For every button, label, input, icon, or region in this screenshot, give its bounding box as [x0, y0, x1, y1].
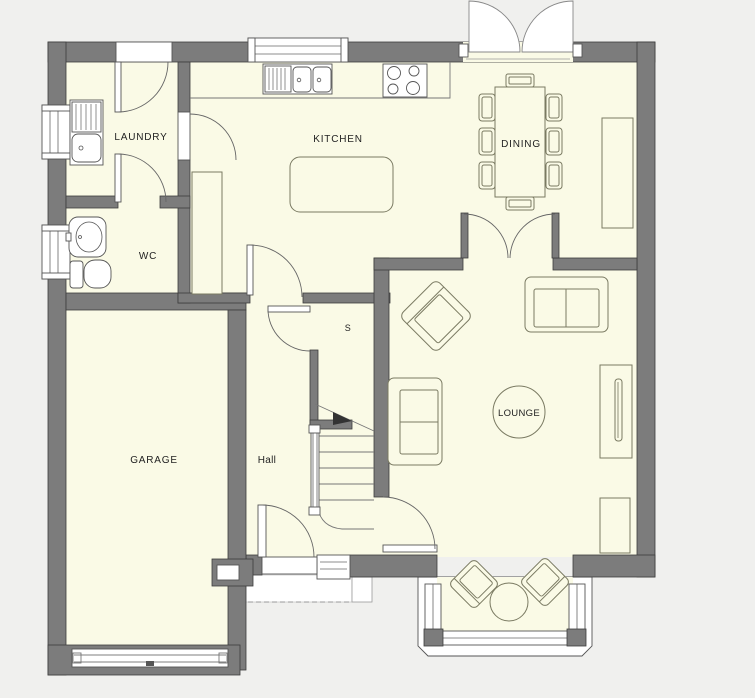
kitchen-island	[290, 157, 393, 212]
floor-plan: LAUNDRY KITCHEN DINING WC S GARAGE Hall …	[0, 0, 755, 698]
porch-step	[352, 577, 372, 602]
wall-right	[637, 42, 655, 577]
wall-laundry-wc-right	[160, 196, 190, 208]
patio-doors	[459, 1, 582, 62]
garage-door-handle	[146, 661, 154, 666]
kitchen-window	[248, 38, 348, 62]
room-label-garage: GARAGE	[130, 455, 178, 466]
wall-store-west	[310, 350, 318, 428]
kitchen-tall-unit	[192, 172, 222, 294]
porch	[246, 575, 372, 602]
room-label-lounge: LOUNGE	[498, 408, 540, 419]
stairs-handrail	[311, 430, 319, 510]
wall-laundry-right-lower	[178, 160, 190, 303]
garage-floor	[66, 557, 228, 648]
meter-box	[217, 565, 239, 580]
laundry-window	[42, 105, 70, 159]
wall-lounge-south-left	[350, 555, 437, 577]
wall-laundry-right-upper	[178, 62, 190, 112]
wall-stairs-lounge	[374, 258, 389, 497]
wc-toilet	[70, 260, 111, 288]
wall-garage-right	[228, 310, 246, 670]
patio-door-leaf-right	[522, 1, 573, 52]
room-label-store: S	[345, 323, 351, 333]
dining-sideboard	[602, 118, 633, 228]
kitchen-sink	[263, 64, 332, 94]
garage-door	[72, 649, 228, 667]
bay-corner-post-right	[567, 629, 586, 646]
floor-plan-page: LAUNDRY KITCHEN DINING WC S GARAGE Hall …	[0, 0, 755, 698]
wall-laundry-wc-left	[66, 196, 118, 208]
hob	[383, 64, 427, 97]
lounge-cabinet	[600, 498, 630, 553]
wall-lounge-south-right	[573, 555, 655, 577]
wall-dining-lounge-right	[553, 258, 637, 270]
wc-basin	[66, 217, 106, 257]
room-label-wc: WC	[139, 251, 157, 262]
patio-door-leaf-left	[469, 1, 520, 52]
room-label-kitchen: KITCHEN	[313, 134, 363, 145]
wall-dining-lounge-left	[374, 258, 463, 270]
tv-unit	[600, 365, 632, 458]
bay-round-table	[490, 583, 528, 621]
room-label-dining: DINING	[501, 139, 541, 150]
laundry-sink	[70, 100, 103, 165]
lounge-sofa-left	[388, 378, 442, 465]
bay-corner-post-left	[424, 629, 443, 646]
room-label-hall: Hall	[258, 455, 276, 466]
room-label-laundry: LAUNDRY	[114, 132, 167, 143]
lounge-sofa-top	[525, 277, 608, 332]
hall-sidelight-window	[317, 555, 350, 579]
